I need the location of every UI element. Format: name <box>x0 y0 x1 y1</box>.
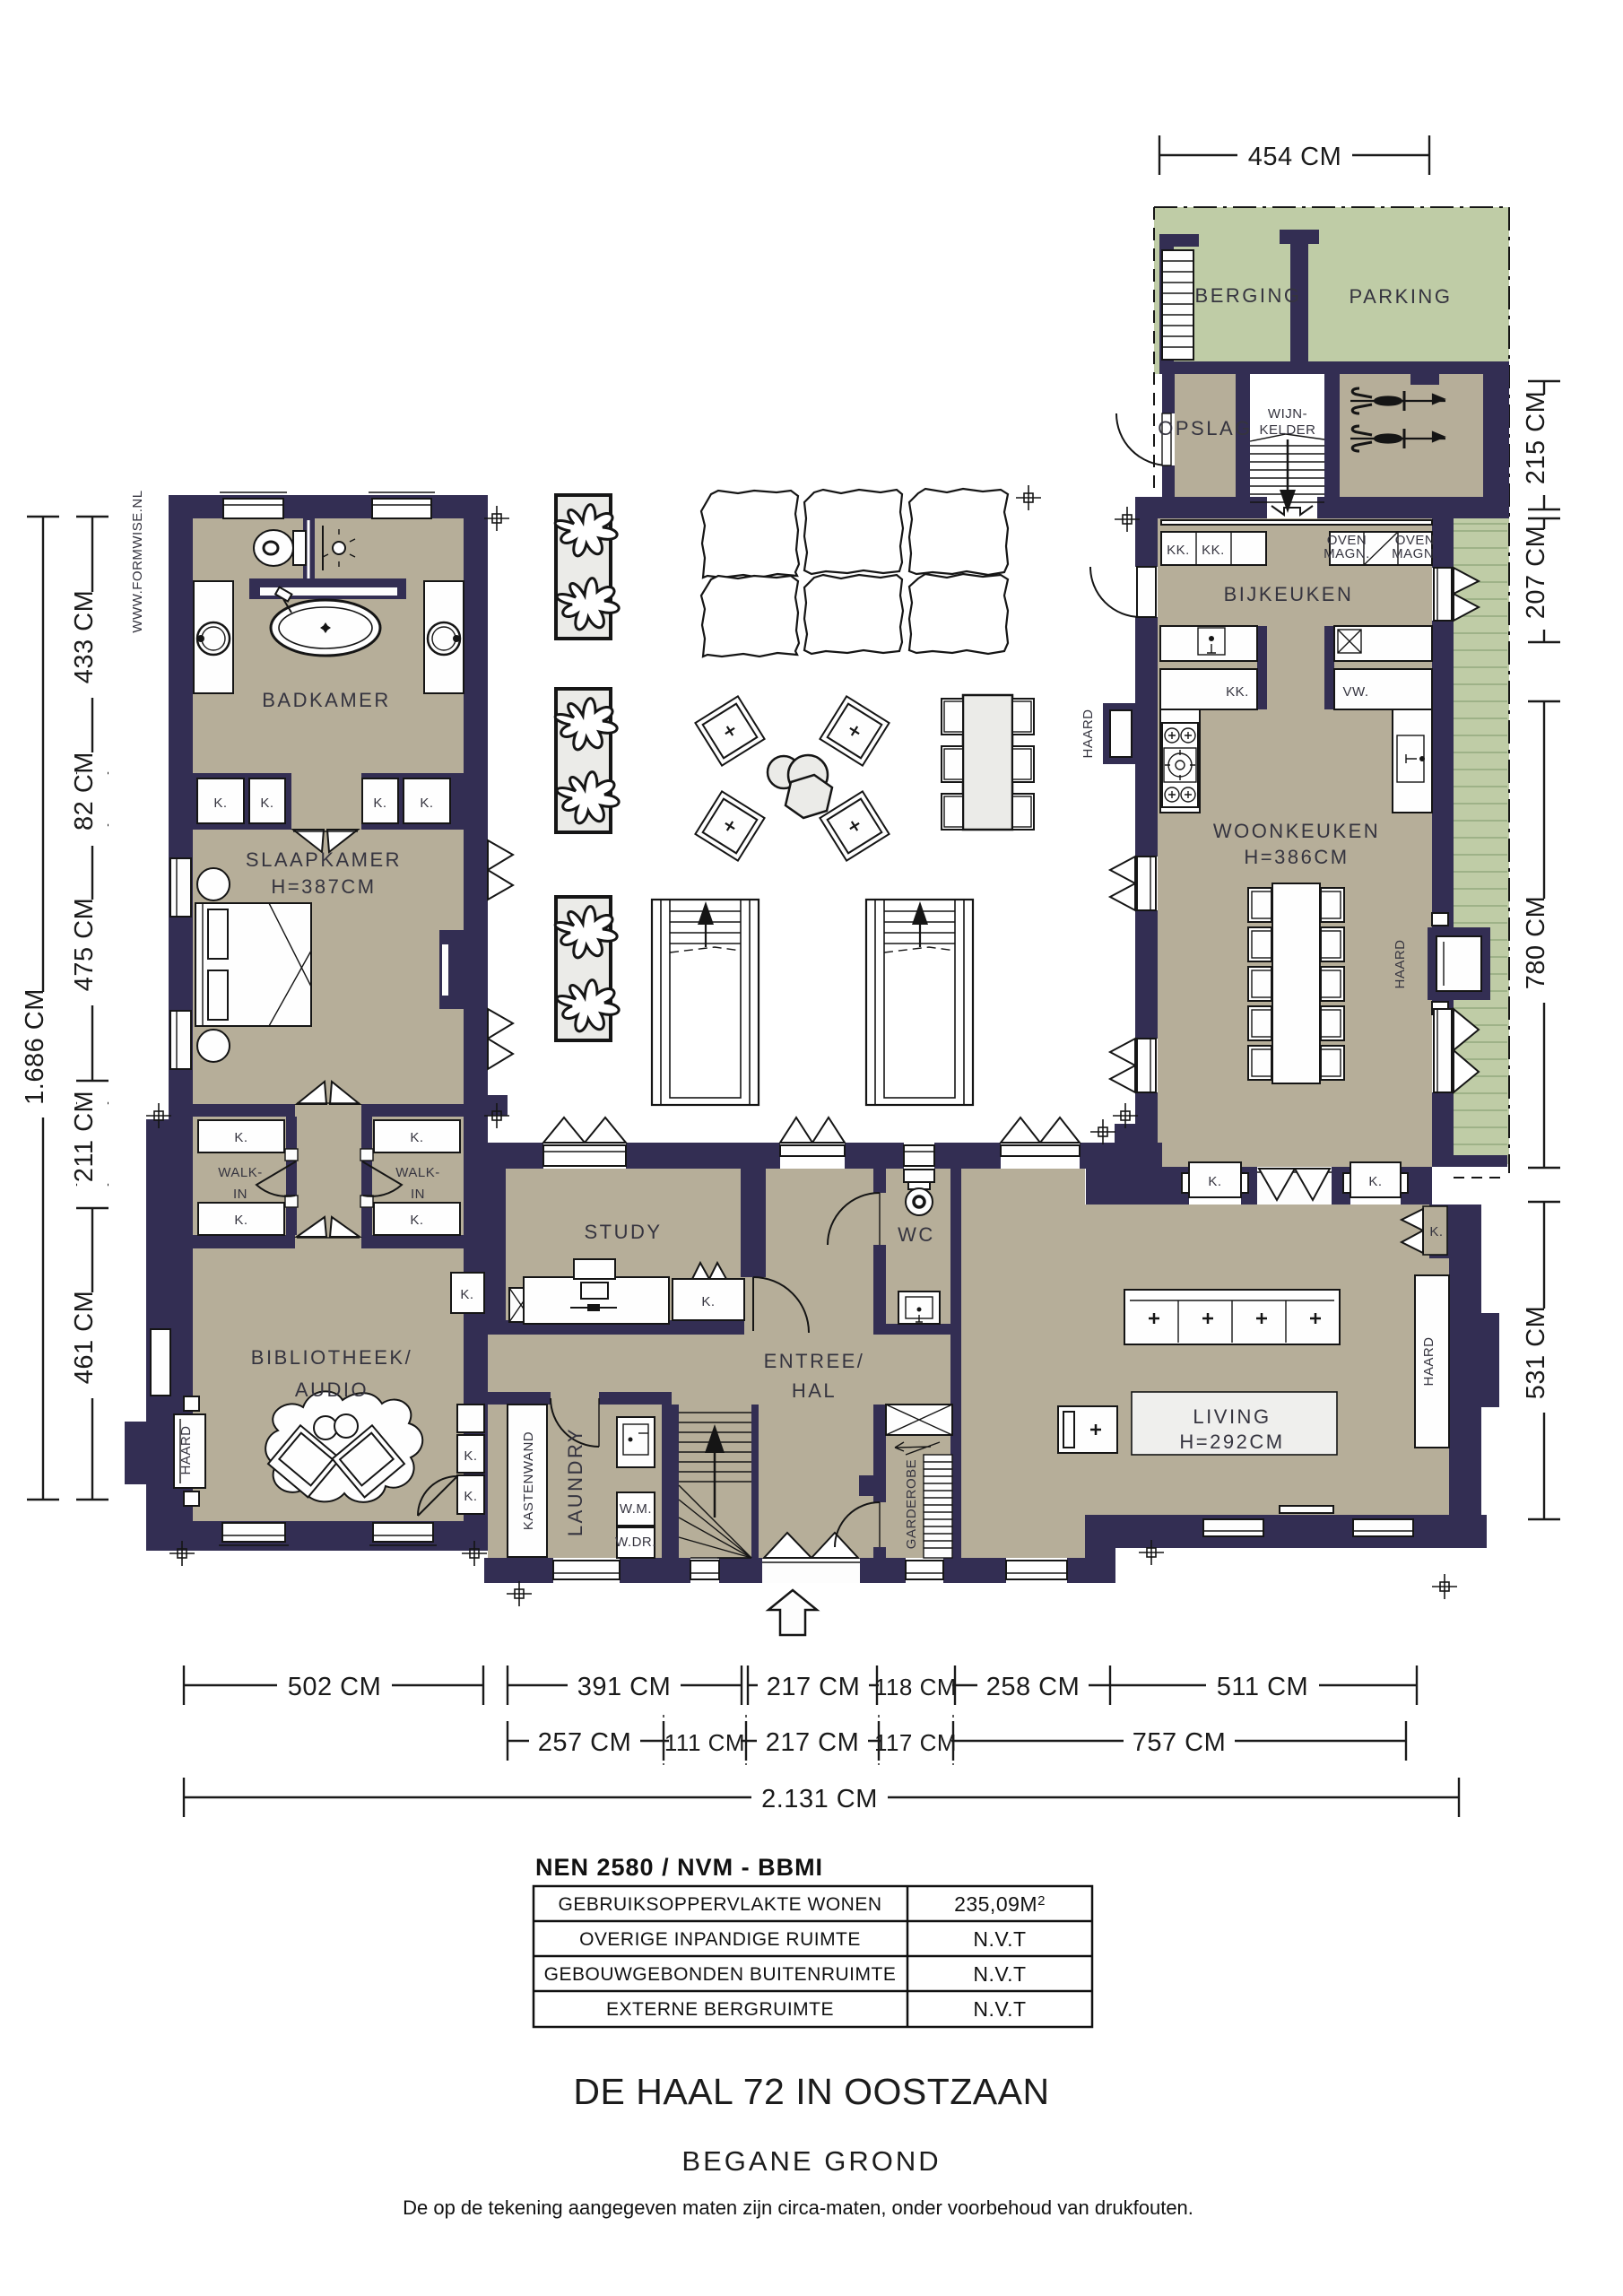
svg-text:HAARD: HAARD <box>1393 939 1408 988</box>
svg-text:HAARD: HAARD <box>1421 1336 1436 1386</box>
svg-text:De op de tekening aangegeven m: De op de tekening aangegeven maten zijn … <box>403 2196 1193 2219</box>
svg-text:WC: WC <box>898 1223 935 1246</box>
svg-text:511 CM: 511 CM <box>1217 1673 1308 1701</box>
svg-text:502 CM: 502 CM <box>288 1673 382 1701</box>
svg-text:H=387CM: H=387CM <box>271 875 376 898</box>
svg-text:MAGN.: MAGN. <box>1392 546 1438 561</box>
svg-text:H=386CM: H=386CM <box>1244 846 1349 868</box>
svg-text:AUDIO: AUDIO <box>295 1378 369 1401</box>
svg-text:HAL: HAL <box>792 1379 837 1402</box>
svg-text:207 CM: 207 CM <box>1522 526 1550 620</box>
svg-text:K.: K. <box>234 1213 247 1228</box>
svg-text:BIBLIOTHEEK/: BIBLIOTHEEK/ <box>251 1346 412 1369</box>
svg-text:111 CM: 111 CM <box>664 1729 745 1756</box>
svg-text:K.: K. <box>464 1448 477 1464</box>
svg-text:K.: K. <box>1208 1174 1221 1189</box>
svg-text:HAARD: HAARD <box>1081 709 1096 758</box>
svg-text:235,09M2: 235,09M2 <box>954 1892 1046 1916</box>
svg-text:BIJKEUKEN: BIJKEUKEN <box>1224 583 1354 605</box>
svg-text:215 CM: 215 CM <box>1522 391 1550 485</box>
svg-text:211 CM: 211 CM <box>70 1091 99 1182</box>
svg-text:531 CM: 531 CM <box>1522 1306 1550 1400</box>
svg-text:757 CM: 757 CM <box>1133 1728 1227 1757</box>
svg-text:GEBOUWGEBONDEN BUITENRUIMTE: GEBOUWGEBONDEN BUITENRUIMTE <box>544 1964 897 1985</box>
svg-text:461 CM: 461 CM <box>70 1291 99 1385</box>
svg-text:82 CM: 82 CM <box>70 752 99 831</box>
svg-text:NEN 2580 / NVM - BBMI: NEN 2580 / NVM - BBMI <box>535 1854 823 1881</box>
svg-text:PARKING: PARKING <box>1350 285 1453 308</box>
svg-text:OPSLAG: OPSLAG <box>1158 417 1252 439</box>
svg-text:SLAAPKAMER: SLAAPKAMER <box>246 848 402 871</box>
svg-text:K.: K. <box>260 796 273 811</box>
svg-text:LAUNDRY: LAUNDRY <box>564 1427 586 1536</box>
svg-text:K.: K. <box>234 1130 247 1145</box>
svg-text:K.: K. <box>460 1287 473 1302</box>
svg-text:K.: K. <box>1429 1224 1443 1239</box>
svg-text:K.: K. <box>464 1489 477 1504</box>
svg-text:K.: K. <box>410 1130 423 1145</box>
svg-text:217 CM: 217 CM <box>767 1673 861 1701</box>
svg-text:LIVING: LIVING <box>1193 1405 1271 1428</box>
svg-text:IN: IN <box>233 1187 247 1202</box>
svg-text:433 CM: 433 CM <box>70 590 99 684</box>
svg-text:N.V.T: N.V.T <box>973 1927 1026 1951</box>
svg-text:1.686 CM: 1.686 CM <box>21 988 49 1105</box>
svg-text:WALK-: WALK- <box>395 1165 439 1180</box>
svg-text:BEGANE GROND: BEGANE GROND <box>681 2145 941 2177</box>
svg-text:EXTERNE BERGRUIMTE: EXTERNE BERGRUIMTE <box>606 1999 834 2020</box>
svg-text:BADKAMER: BADKAMER <box>262 689 390 711</box>
svg-text:257 CM: 257 CM <box>538 1728 632 1757</box>
svg-text:VW.: VW. <box>1342 684 1368 700</box>
svg-text:2.131 CM: 2.131 CM <box>761 1785 878 1813</box>
svg-text:W.DR.: W.DR. <box>615 1535 656 1550</box>
svg-text:K.: K. <box>420 796 433 811</box>
svg-text:K.: K. <box>1368 1174 1382 1189</box>
svg-text:391 CM: 391 CM <box>577 1673 672 1701</box>
svg-text:K.: K. <box>213 796 227 811</box>
svg-text:WALK-: WALK- <box>218 1165 262 1180</box>
svg-text:117 CM: 117 CM <box>874 1729 957 1756</box>
svg-text:KK.: KK. <box>1167 543 1190 558</box>
svg-text:KASTENWAND: KASTENWAND <box>521 1431 536 1530</box>
svg-text:DE HAAL 72 IN OOSTZAAN: DE HAAL 72 IN OOSTZAAN <box>573 2071 1049 2112</box>
svg-text:OVERIGE INPANDIGE RUIMTE: OVERIGE INPANDIGE RUIMTE <box>579 1929 861 1950</box>
svg-text:H=292CM: H=292CM <box>1179 1431 1284 1453</box>
svg-text:KK.: KK. <box>1226 684 1249 700</box>
svg-text:WIJN-: WIJN- <box>1268 406 1307 422</box>
svg-text:MAGN.: MAGN. <box>1324 546 1370 561</box>
svg-text:BERGING: BERGING <box>1195 284 1302 307</box>
svg-text:IN: IN <box>411 1187 425 1202</box>
svg-text:STUDY: STUDY <box>584 1221 662 1243</box>
svg-text:N.V.T: N.V.T <box>973 1997 1026 2021</box>
svg-text:ENTREE/: ENTREE/ <box>764 1350 865 1372</box>
svg-text:454 CM: 454 CM <box>1248 143 1342 171</box>
svg-text:118 CM: 118 CM <box>874 1674 957 1700</box>
svg-text:K.: K. <box>410 1213 423 1228</box>
svg-text:HAARD: HAARD <box>178 1425 194 1474</box>
svg-text:475 CM: 475 CM <box>70 898 99 992</box>
svg-text:K.: K. <box>701 1294 715 1309</box>
svg-text:WWW.FORMWISE.NL: WWW.FORMWISE.NL <box>130 490 145 632</box>
svg-text:KK.: KK. <box>1202 543 1225 558</box>
svg-text:GARDEROBE: GARDEROBE <box>904 1459 919 1549</box>
svg-text:217 CM: 217 CM <box>766 1728 860 1757</box>
svg-text:GEBRUIKSOPPERVLAKTE WONEN: GEBRUIKSOPPERVLAKTE WONEN <box>558 1894 881 1915</box>
svg-text:KELDER: KELDER <box>1259 422 1315 438</box>
svg-text:258 CM: 258 CM <box>986 1673 1081 1701</box>
svg-text:W.M.: W.M. <box>620 1501 652 1517</box>
svg-text:780 CM: 780 CM <box>1522 896 1550 990</box>
svg-text:N.V.T: N.V.T <box>973 1962 1026 1986</box>
svg-text:WOONKEUKEN: WOONKEUKEN <box>1213 820 1380 842</box>
svg-text:K.: K. <box>373 796 386 811</box>
